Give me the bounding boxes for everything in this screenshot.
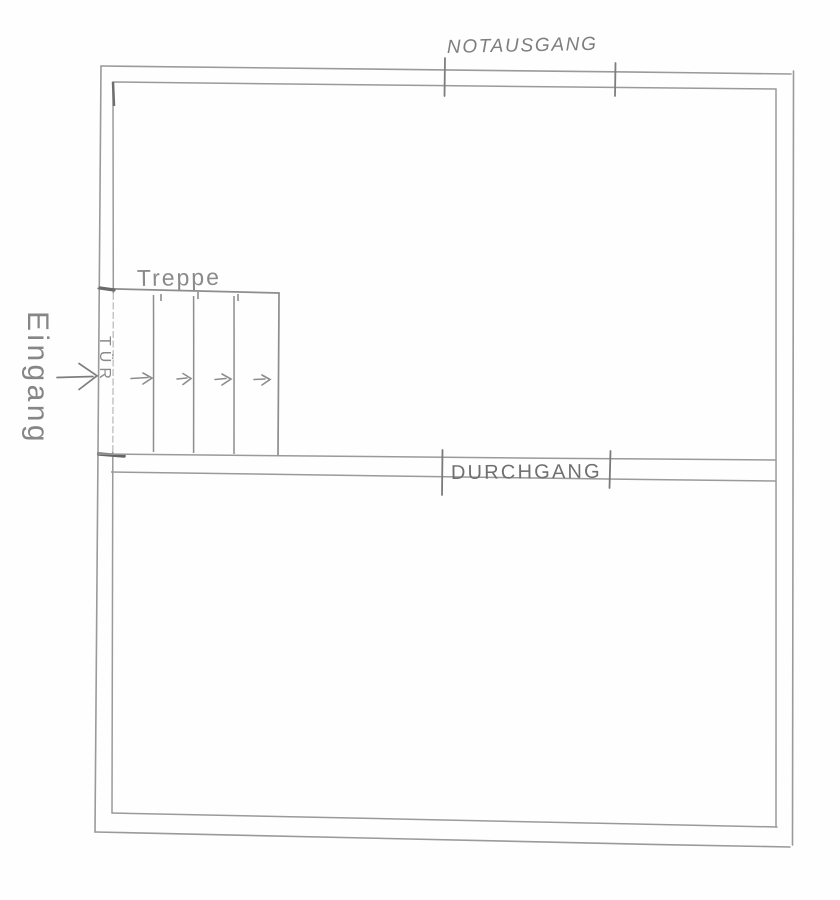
svg-text:Eingang: Eingang: [21, 311, 54, 445]
svg-text:Treppe: Treppe: [137, 264, 221, 291]
svg-text:DURCHGANG: DURCHGANG: [451, 461, 602, 484]
svg-text:TÜR: TÜR: [96, 336, 114, 384]
svg-text:NOTAUSGANG: NOTAUSGANG: [447, 34, 598, 58]
